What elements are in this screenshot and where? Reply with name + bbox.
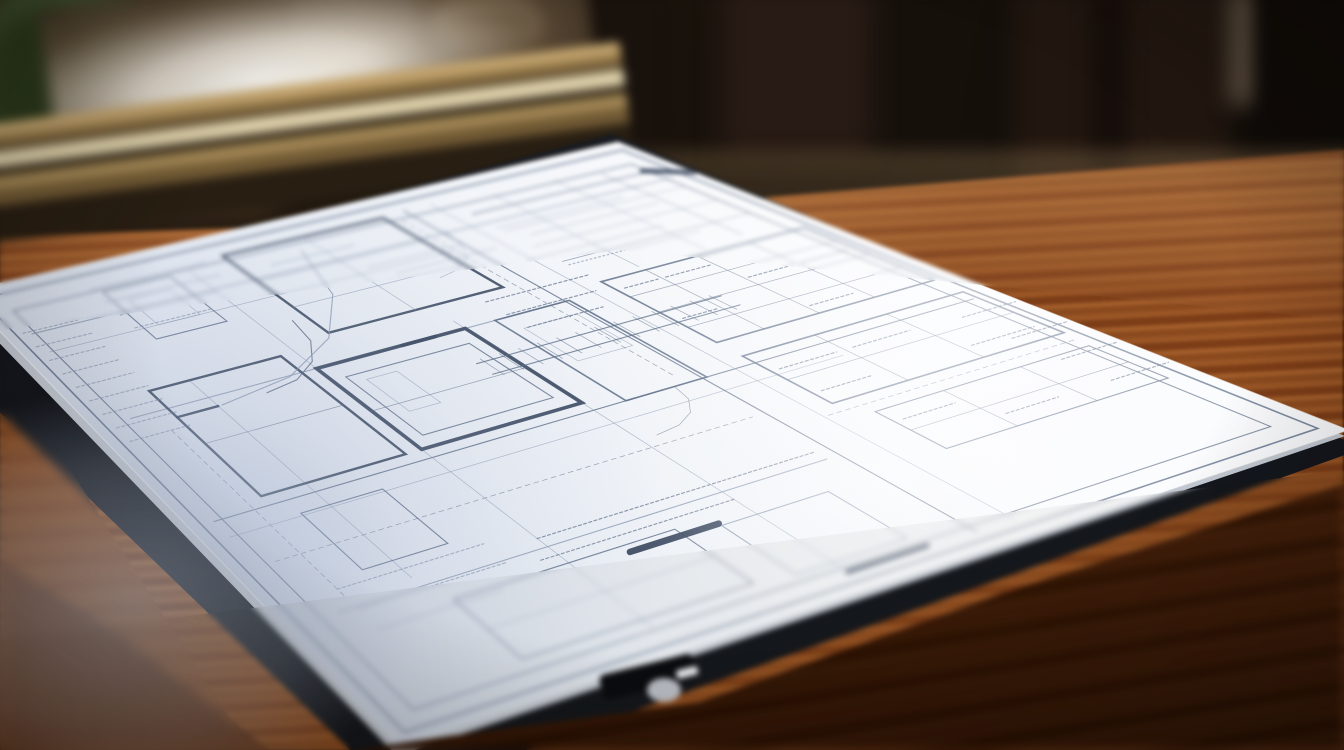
photograph [0, 0, 1344, 750]
vignette [0, 0, 1344, 750]
